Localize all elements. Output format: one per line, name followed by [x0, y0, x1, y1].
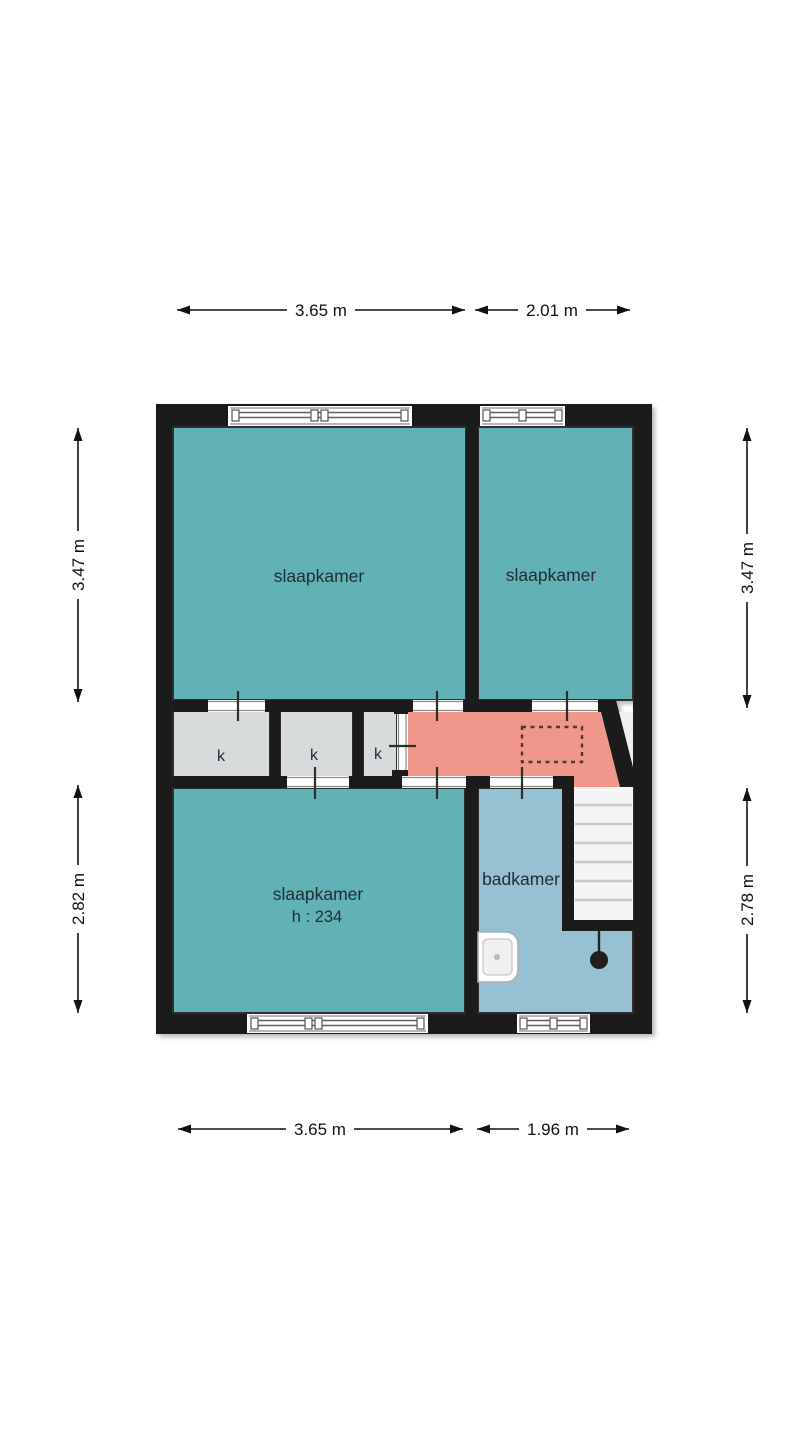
dimension-top-left: 3.65 m: [177, 298, 465, 322]
hallway-floor: [407, 712, 624, 787]
wall-stub-top: [394, 700, 408, 714]
floor-plan-page: slaapkamer slaapkamer slaapkamer h : 234…: [0, 0, 810, 1440]
dimension-label-right-upper: 3.47 m: [738, 542, 757, 594]
outer-wall-left: [156, 404, 173, 1034]
dimension-label-left-lower: 2.82 m: [69, 873, 88, 925]
bedroom-1-label: slaapkamer: [274, 566, 365, 586]
door-opening-closet-2: [287, 776, 349, 788]
bathroom-label: badkamer: [482, 869, 560, 889]
closet-3-label: k: [374, 746, 383, 763]
window-icon-top-left: [228, 406, 412, 426]
dimension-label-left-upper: 3.47 m: [69, 539, 88, 591]
sink-icon: [478, 932, 518, 982]
window-icon-top-right: [480, 406, 565, 426]
bedroom-3-height-note: h : 234: [292, 908, 342, 926]
door-opening-closet-3: [397, 714, 408, 770]
bedroom-1-floor: [173, 427, 466, 700]
bedroom-2-floor: [478, 427, 633, 700]
door-opening-bedroom-3: [402, 776, 466, 788]
wall-closet-divider-2: [353, 711, 363, 777]
dimension-top-right: 2.01 m: [475, 298, 630, 322]
bedroom-2-label: slaapkamer: [506, 565, 597, 585]
dimension-bottom-left: 3.65 m: [178, 1117, 463, 1141]
outer-wall-right: [633, 404, 652, 1034]
dimension-bottom-right: 1.96 m: [477, 1117, 629, 1141]
dimension-label-bottom-right: 1.96 m: [527, 1120, 579, 1139]
dimension-right-upper: 3.47 m: [735, 428, 759, 708]
staircase: [574, 787, 633, 920]
dimension-left-lower: 2.82 m: [66, 785, 90, 1013]
wall-bedroom-bathroom: [465, 788, 478, 1013]
closet-1-label: k: [217, 748, 226, 765]
dimension-label-right-lower: 2.78 m: [738, 874, 757, 926]
closet-2-floor: [280, 711, 353, 777]
window-icon-bottom-right: [517, 1014, 590, 1033]
wall-closet-divider-1: [270, 711, 280, 777]
dimension-label-top-left: 3.65 m: [295, 301, 347, 320]
door-opening-bedroom-2: [532, 700, 598, 712]
closet-1-floor: [173, 711, 270, 777]
wall-stairwell-left: [562, 776, 574, 931]
floor-plan: slaapkamer slaapkamer slaapkamer h : 234…: [0, 0, 810, 1440]
window-icon-bottom-left: [247, 1014, 428, 1033]
door-opening-closet-1: [208, 700, 265, 712]
bedroom-3-label: slaapkamer: [273, 884, 364, 904]
closet-2-label: k: [310, 747, 319, 764]
floor-plan-body: [156, 404, 652, 1034]
wall-between-bedrooms: [466, 427, 478, 700]
wall-stairwell-bottom: [562, 920, 635, 931]
dimension-right-lower: 2.78 m: [735, 788, 759, 1013]
dimension-label-bottom-left: 3.65 m: [294, 1120, 346, 1139]
dimension-left-upper: 3.47 m: [66, 428, 90, 702]
dimension-label-top-right: 2.01 m: [526, 301, 578, 320]
closet-3-floor: [363, 711, 397, 777]
